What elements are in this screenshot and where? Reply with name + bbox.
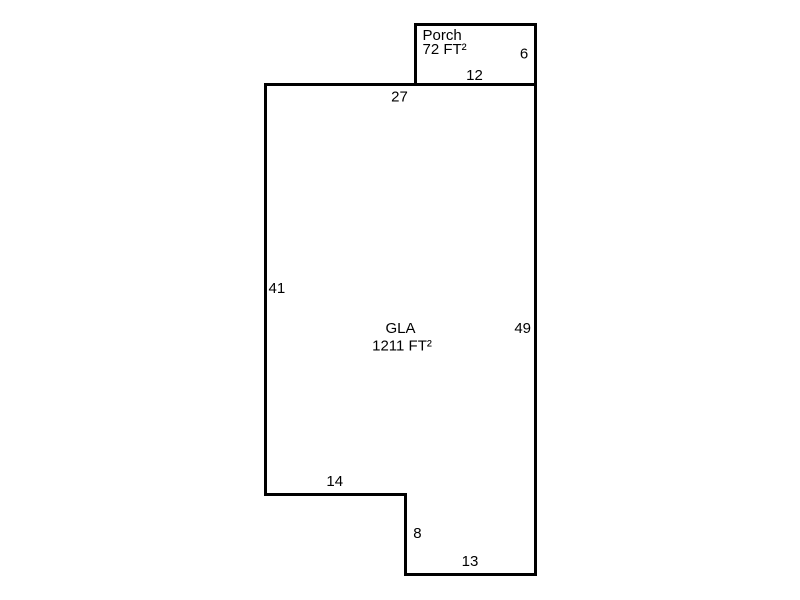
svg-text:GLA: GLA	[385, 320, 415, 337]
svg-text:8: 8	[413, 525, 421, 542]
svg-text:14: 14	[326, 473, 343, 490]
svg-text:27: 27	[391, 88, 408, 105]
svg-text:12: 12	[466, 67, 483, 84]
svg-text:41: 41	[269, 280, 286, 297]
svg-text:72 FT²: 72 FT²	[423, 41, 467, 58]
svg-text:1211 FT²: 1211 FT²	[372, 338, 432, 355]
svg-text:13: 13	[462, 553, 479, 570]
svg-text:6: 6	[520, 45, 528, 62]
svg-text:49: 49	[514, 320, 531, 337]
